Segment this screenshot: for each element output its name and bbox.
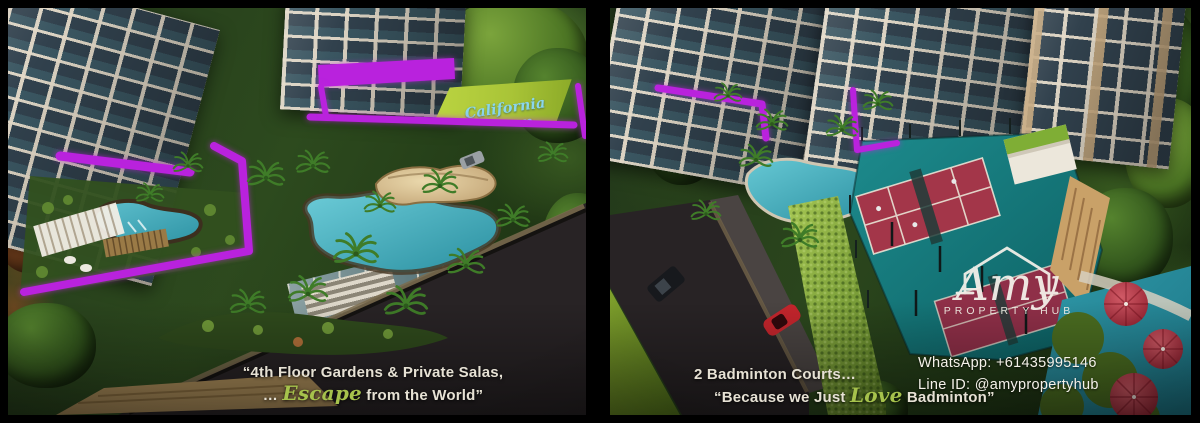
lounger bbox=[64, 256, 76, 264]
caption-script-word: Love bbox=[850, 383, 903, 407]
red-umbrella bbox=[1143, 329, 1183, 369]
left-caption-line2: … Escape from the World” bbox=[168, 383, 578, 406]
highlight-edge-right bbox=[578, 86, 585, 136]
lounger bbox=[80, 264, 92, 272]
highlight-outline-terrace-top bbox=[60, 156, 190, 172]
brand-name: Amy bbox=[952, 257, 1060, 311]
left-caption-line1: “4th Floor Gardens & Private Salas, bbox=[168, 362, 578, 383]
caption-prefix: … bbox=[263, 387, 283, 404]
right-caption: 2 Badminton Courts… “Because we Just Lov… bbox=[694, 364, 995, 408]
right-scene-graphics bbox=[610, 8, 1191, 415]
highlight-outline-building-a bbox=[658, 88, 766, 138]
left-render-panel: California dream bbox=[8, 8, 586, 415]
brand-tagline: PROPERTY HUB bbox=[944, 305, 1074, 317]
highlight-drop-building bbox=[321, 87, 326, 116]
highlight-underline-banner bbox=[310, 117, 574, 125]
left-caption: “4th Floor Gardens & Private Salas, … Es… bbox=[168, 362, 578, 406]
right-render-panel: Amy PROPERTY HUB WhatsApp: +61435995146 … bbox=[610, 8, 1191, 415]
caption-suffix: from the World” bbox=[362, 387, 483, 404]
caption-script-word: Escape bbox=[282, 381, 362, 405]
right-caption-line1: 2 Badminton Courts… bbox=[694, 364, 995, 385]
left-scene-graphics bbox=[8, 8, 586, 415]
marketing-collage: California dream bbox=[0, 0, 1200, 423]
right-caption-line2: “Because we Just Love Badminton” bbox=[694, 385, 995, 408]
highlight-band-building bbox=[318, 58, 455, 87]
caption-prefix: “Because we Just bbox=[714, 389, 850, 406]
brand-watermark: Amy PROPERTY HUB bbox=[927, 240, 1087, 340]
red-umbrella bbox=[1104, 282, 1148, 326]
caption-suffix: Badminton” bbox=[903, 389, 995, 406]
